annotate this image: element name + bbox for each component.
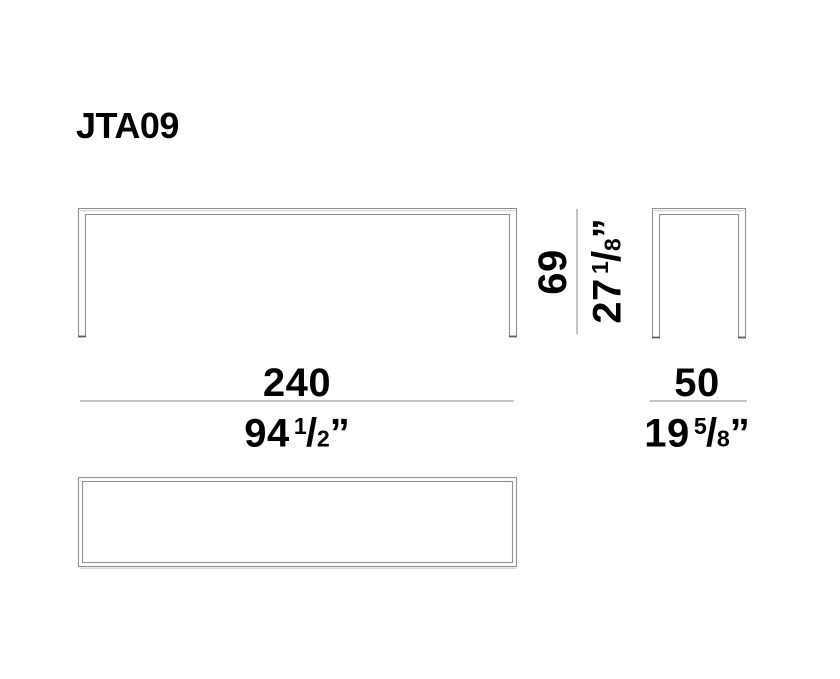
side-view [653,209,746,338]
width-imperial-whole: 94 [244,411,290,455]
depth-imperial-label: 195/8” [597,406,797,446]
technical-drawing-page: JTA09 240 941/2” 50 195/8” 69 271/8” [0,0,840,679]
top-view-outer-rect [79,478,517,567]
side-view-outer-contour [653,209,746,338]
height-metric-label: 69 [533,192,573,352]
height-imperial-numerator: 1 [587,261,613,274]
front-view-outer-contour [79,209,517,337]
height-imperial-whole: 27 [585,278,629,324]
fraction-slash: / [585,250,629,262]
height-imperial-denominator: 8 [599,238,625,251]
height-imperial-label: 271/8” [580,171,620,371]
width-inch-mark: ” [330,411,350,455]
width-metric-label: 240 [197,363,397,403]
width-imperial-numerator: 1 [294,413,307,439]
depth-imperial-numerator: 5 [694,413,707,439]
depth-metric-label: 50 [597,363,797,403]
top-view [79,478,517,567]
front-view-inner-contour [86,215,510,337]
top-view-inner-rect [83,482,513,563]
front-view [79,209,517,337]
product-code: JTA09 [76,108,179,144]
depth-inch-mark: ” [730,411,750,455]
side-view-inner-contour [660,215,739,338]
height-inch-mark: ” [585,218,629,238]
furniture-drawing [0,0,840,679]
width-imperial-denominator: 2 [317,425,330,451]
width-imperial-label: 941/2” [197,406,397,446]
depth-imperial-whole: 19 [644,411,690,455]
depth-imperial-denominator: 8 [717,425,730,451]
